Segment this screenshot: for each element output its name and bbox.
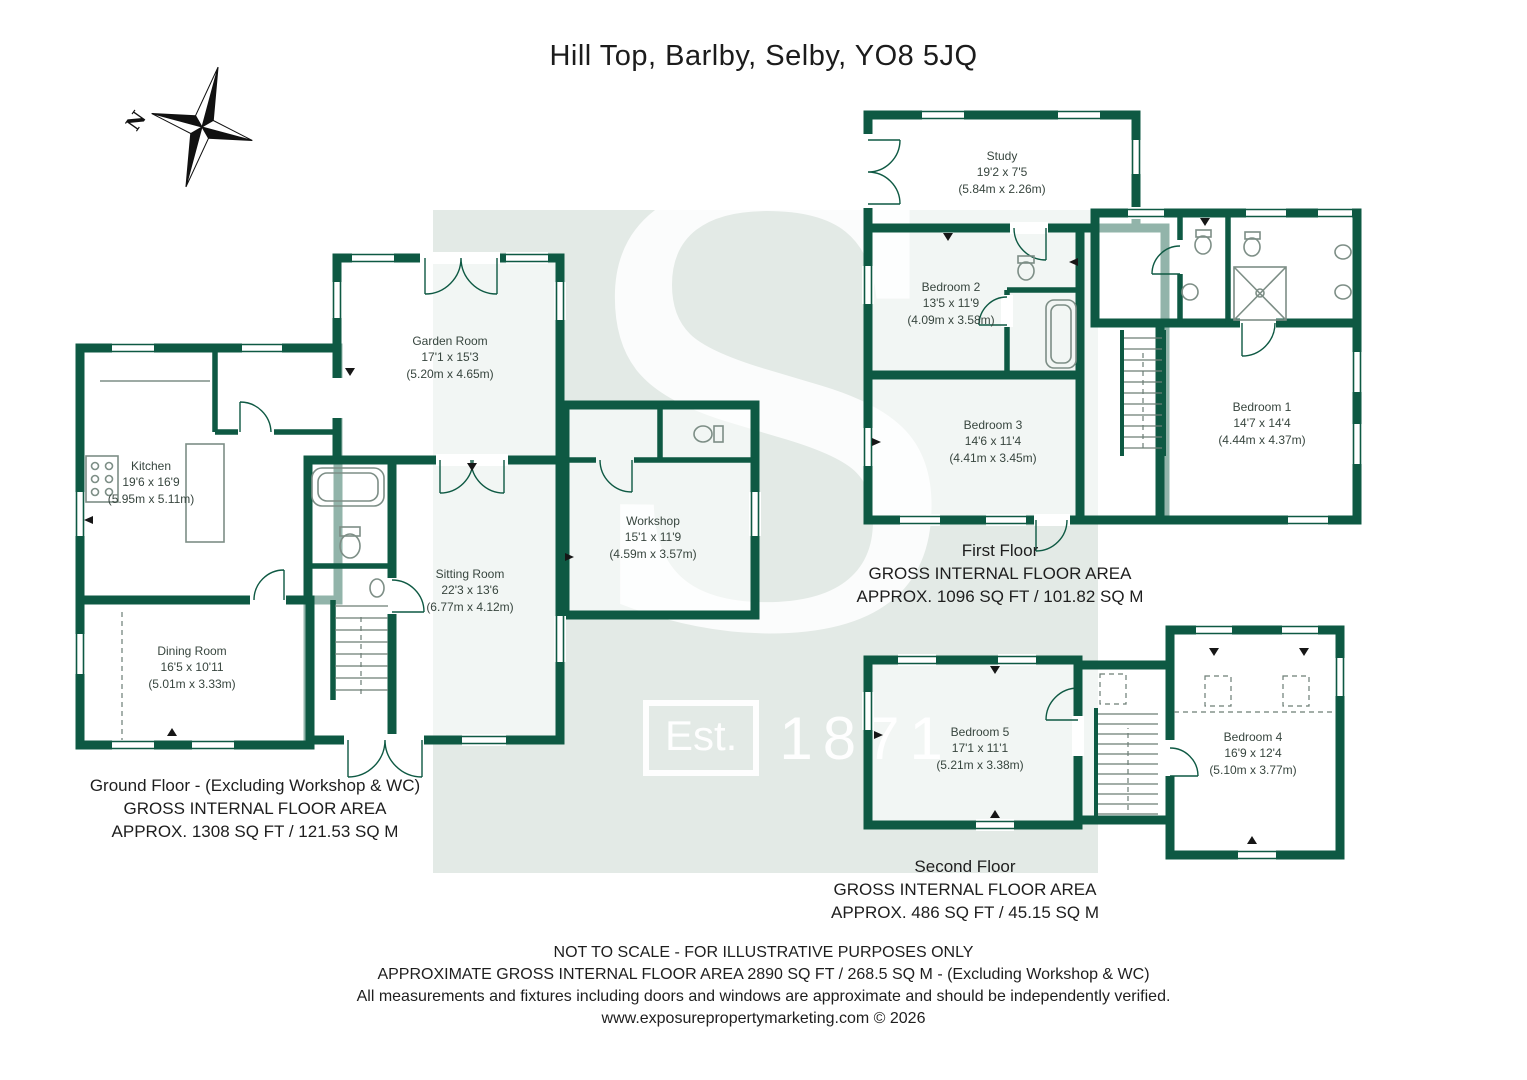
room-label-sitting-room: Sitting Room22'3 x 13'6(6.77m x 4.12m) [426, 566, 513, 615]
footer-total-area: APPROXIMATE GROSS INTERNAL FLOOR AREA 28… [0, 966, 1527, 984]
floorplan-page: S Est. 1871 Hill Top, Barlby, Selby, YO8… [0, 0, 1527, 1080]
first-floor-plan [862, 109, 1363, 551]
room-label-bedroom5: Bedroom 517'1 x 11'1(5.21m x 3.38m) [936, 724, 1023, 773]
footer-website: www.exposurepropertymarketing.com © 2026 [0, 1010, 1527, 1028]
room-label-workshop: Workshop15'1 x 11'9(4.59m x 3.57m) [609, 513, 696, 562]
room-label-study: Study19'2 x 7'5(5.84m x 2.26m) [958, 148, 1045, 197]
room-label-bedroom1: Bedroom 114'7 x 14'4(4.44m x 4.37m) [1218, 399, 1305, 448]
room-label-bedroom4: Bedroom 416'9 x 12'4(5.10m x 3.77m) [1209, 729, 1296, 778]
footer-disclaimer: All measurements and fixtures including … [0, 988, 1527, 1006]
compass-north-label: N [121, 106, 151, 135]
footer-not-to-scale: NOT TO SCALE - FOR ILLUSTRATIVE PURPOSES… [0, 944, 1527, 962]
room-label-kitchen: Kitchen19'6 x 16'9(5.95m x 5.11m) [108, 458, 194, 507]
first-floor-caption: First FloorGROSS INTERNAL FLOOR AREAAPPR… [857, 540, 1144, 609]
room-label-dining-room: Dining Room16'5 x 10'11(5.01m x 3.33m) [148, 643, 235, 692]
room-label-bedroom3: Bedroom 314'6 x 11'4(4.41m x 3.45m) [949, 417, 1036, 466]
stair-hall-outline [1078, 665, 1170, 820]
floorplan-drawing: N [0, 0, 1527, 1080]
compass-rose: N [109, 46, 268, 200]
ground-floor-caption: Ground Floor - (Excluding Workshop & WC)… [90, 775, 420, 844]
second-floor-caption: Second FloorGROSS INTERNAL FLOOR AREAAPP… [831, 856, 1099, 925]
bath-stair-strip-outline [308, 460, 392, 740]
room-label-garden-room: Garden Room17'1 x 15'3(5.20m x 4.65m) [406, 333, 493, 382]
room-label-bedroom2: Bedroom 213'5 x 11'9(4.09m x 3.58m) [907, 279, 994, 328]
